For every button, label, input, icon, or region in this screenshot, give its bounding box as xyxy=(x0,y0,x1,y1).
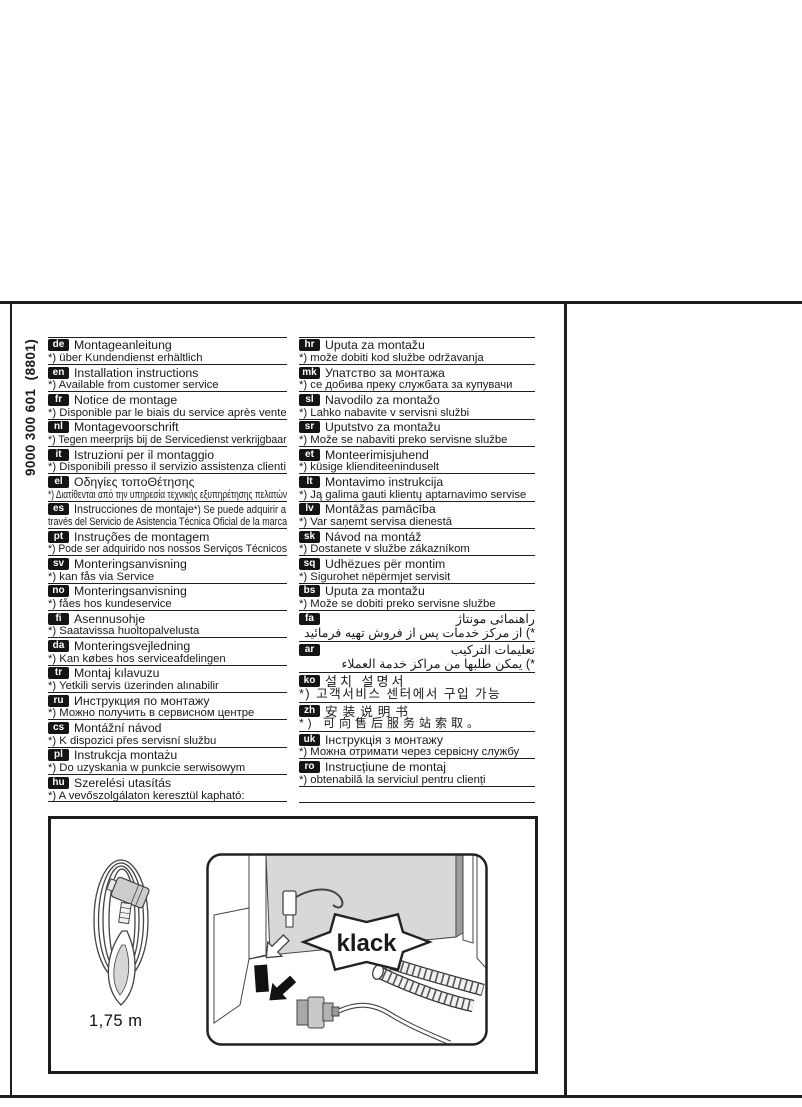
language-title: Monteringsvejledning xyxy=(74,639,190,653)
language-availability-note: *) über Kundendienst erhältlich xyxy=(48,352,287,365)
language-entry-en: enInstallation instructions*) Available … xyxy=(48,365,287,392)
language-availability-note: *) Yetkili servis üzerinden alınabilir xyxy=(48,680,287,693)
language-title: تعليمات التركيب xyxy=(325,642,535,657)
language-code-badge: sv xyxy=(48,558,69,570)
language-column-right: hrUputa za montažu*) može dobiti kod slu… xyxy=(299,337,535,803)
language-availability-note: *) Sigurohet nëpërmjet servisit xyxy=(299,571,535,584)
language-entry-et: etMonteerimisjuhend*) küsige klienditeen… xyxy=(299,447,535,474)
language-entry-lt: ltMontavimo instrukcija*) Ją galima gaut… xyxy=(299,474,535,501)
language-entry-fr: frNotice de montage*) Disponible par le … xyxy=(48,392,287,419)
cable-length-label: 1,75 m xyxy=(89,1012,142,1031)
language-entry-ru: ruИнструкция по монтажу*) Можно получить… xyxy=(48,693,287,720)
language-title: Инструкция по монтажу xyxy=(74,694,209,708)
language-availability-note: *) küsige klienditeeninduselt xyxy=(299,461,535,474)
language-entry-tr: trMontaj kılavuzu*) Yetkili servis üzeri… xyxy=(48,666,287,693)
language-availability-note: *) از مرکز خدمات پس از فروش تهیه فرمائید xyxy=(299,626,535,641)
language-title: Installation instructions xyxy=(74,366,198,380)
language-entry-es: esInstrucciones de montaje*) Se puede ad… xyxy=(48,502,287,529)
language-title: Uputa za montažu xyxy=(325,338,425,352)
language-code-badge: ru xyxy=(48,695,69,707)
language-availability-note: *) obtenabilă la serviciul pentru clienț… xyxy=(299,774,535,787)
language-entry-no: noMonteringsanvisning*) fåes hos kundese… xyxy=(48,584,287,611)
language-entry-uk: ukІнструкція з монтажу*) Можна отримати … xyxy=(299,732,535,759)
language-code-badge: fi xyxy=(48,613,69,625)
socket-opening xyxy=(254,965,269,993)
language-availability-note: *) Do uzyskania w punkcie serwisowym xyxy=(48,762,287,775)
language-availability-note: *) Dostanete v službe zákazníkom xyxy=(299,543,535,556)
language-availability-note: *) Διατίθενται από την υπηρεσία τεχνικής… xyxy=(48,489,224,502)
language-code-badge: tr xyxy=(48,667,69,679)
language-availability-note: *) Var saņemt servisa dienestā xyxy=(299,516,535,529)
language-code-badge: hr xyxy=(299,339,320,351)
language-entry-hr: hrUputa za montažu*) može dobiti kod slu… xyxy=(299,338,535,365)
language-title: Monteringsanvisning xyxy=(74,557,187,571)
part-number-vertical: 9000 300 601 (8801) xyxy=(23,316,41,476)
language-code-badge: it xyxy=(48,449,69,461)
language-title: Інструкція з монтажу xyxy=(325,733,443,747)
language-availability-note: través del Servicio de Asistencia Técnic… xyxy=(48,516,238,529)
language-code-badge: sl xyxy=(299,394,320,406)
language-availability-note: *) Disponible par le biais du service ap… xyxy=(48,407,287,420)
language-entry-ko: ko설치 설명서*) 고객서비스 센터에서 구입 가능 xyxy=(299,673,535,703)
language-title: Montageanleitung xyxy=(74,338,172,352)
language-availability-note: *) Pode ser adquirido nos nossos Serviço… xyxy=(48,543,267,556)
language-title: Notice de montage xyxy=(74,393,177,407)
language-code-badge: ko xyxy=(299,675,320,687)
language-title: Istruzioni per il montaggio xyxy=(74,448,214,462)
language-title: Οδηγίες τοποΘέτησης xyxy=(74,475,195,489)
language-title: Instruções de montagem xyxy=(74,530,209,544)
language-availability-note: *) Можна отримати через сервісну службу xyxy=(299,746,535,759)
language-availability-note: *) Можно получить в сервисном центре xyxy=(48,707,287,720)
language-entry-cs: csMontážní návod*) K dispozici přes serv… xyxy=(48,720,287,747)
language-title: Montážní návod xyxy=(74,721,162,735)
language-entry-fi: fiAsennusohje*) Saatavissa huoltopalvelu… xyxy=(48,611,287,638)
language-availability-note: *) Ją galima gauti klientų aptarnavimo s… xyxy=(299,489,535,502)
page-column-divider xyxy=(564,301,567,1098)
language-entry-sv: svMonteringsanvisning*) kan fås via Serv… xyxy=(48,556,287,583)
language-entry-ar: arتعليمات التركيب*) يمكن طلبها من مراكز … xyxy=(299,642,535,673)
language-entry-it: itIstruzioni per il montaggio*) Disponib… xyxy=(48,447,287,474)
language-title: Udhëzues për montim xyxy=(325,557,445,571)
language-code-badge: cs xyxy=(48,722,69,734)
language-entry-sq: sqUdhëzues për montim*) Sigurohet nëpërm… xyxy=(299,556,535,583)
klack-label: klack xyxy=(336,930,397,957)
language-code-badge: ro xyxy=(299,761,320,773)
language-title: Monteerimisjuhend xyxy=(325,448,429,462)
language-availability-note: *) يمكن طلبها من مراكز خدمة العملاء xyxy=(299,657,535,672)
language-title: Asennusohje xyxy=(74,612,145,626)
language-code-badge: uk xyxy=(299,734,320,746)
language-code-badge: lv xyxy=(299,503,320,515)
language-code-badge: pt xyxy=(48,531,69,543)
language-entry-mk: mkУпатство за монтажа*) се добива преку … xyxy=(299,365,535,392)
language-entry-hu: huSzerelési utasítás*) A vevőszolgálaton… xyxy=(48,775,287,802)
language-title: Montavimo instrukcija xyxy=(325,475,443,489)
language-entry-ro: roInstrucțiune de montaj*) obtenabilă la… xyxy=(299,759,535,786)
language-availability-note: *) Available from customer service xyxy=(48,379,287,392)
language-code-badge: mk xyxy=(299,367,320,379)
language-availability-note: *) 고객서비스 센터에서 구입 가능 xyxy=(299,687,535,701)
language-title: Instrucciones de montaje xyxy=(74,502,194,516)
language-availability-note: *) Tegen meerprijs bij de Servicedienst … xyxy=(48,434,272,447)
power-plug xyxy=(297,997,339,1028)
language-entry-pl: plInstrukcja montażu*) Do uzyskania w pu… xyxy=(48,748,287,775)
language-entry-lv: lvMontāžas pamācība*) Var saņemt servisa… xyxy=(299,502,535,529)
language-entry-fa: faراهنمائی مونتاژ*) از مرکز خدمات پس از … xyxy=(299,611,535,642)
page-top-border xyxy=(0,301,802,304)
language-title: Szerelési utasítás xyxy=(74,776,171,790)
illustration-box: 1,75 m xyxy=(48,816,538,1074)
language-availability-note: *) kan fås via Service xyxy=(48,571,287,584)
language-code-badge: de xyxy=(48,339,69,351)
power-cord xyxy=(339,1005,450,1043)
language-column-left: deMontageanleitung*) über Kundendienst e… xyxy=(48,337,287,803)
language-code-badge: zh xyxy=(299,705,320,717)
language-entry-el: elΟδηγίες τοποΘέτησης*) Διατίθενται από … xyxy=(48,474,287,501)
manual-page: 9000 300 601 (8801) deMontageanleitung*)… xyxy=(0,0,802,1107)
language-code-badge: fr xyxy=(48,394,69,406)
language-code-badge: es xyxy=(48,503,69,515)
language-entry-nl: nlMontagevoorschrift*) Tegen meerprijs b… xyxy=(48,420,287,447)
column-end-rule xyxy=(299,787,535,803)
language-title: Montāžas pamācība xyxy=(325,502,436,516)
language-code-badge: da xyxy=(48,640,69,652)
language-code-badge: sq xyxy=(299,558,320,570)
page-bottom-border xyxy=(0,1095,802,1098)
appliance-connection-illustration: klack xyxy=(206,853,488,1046)
language-title: Montaj kılavuzu xyxy=(74,666,159,680)
language-availability-note: *) može dobiti kod službe održavanja xyxy=(299,352,535,365)
language-code-badge: sr xyxy=(299,421,320,433)
language-title: Instrukcja montażu xyxy=(74,748,177,762)
language-entry-de: deMontageanleitung*) über Kundendienst e… xyxy=(48,338,287,365)
appliance-side-wall xyxy=(214,908,249,1023)
language-code-badge: et xyxy=(299,449,320,461)
language-title: Uputa za montažu xyxy=(325,584,425,598)
language-entry-sr: srUputstvo za montažu*) Može se nabaviti… xyxy=(299,420,535,447)
language-code-badge: lt xyxy=(299,476,320,488)
language-code-badge: ar xyxy=(299,644,320,656)
language-entry-sk: skNávod na montáž*) Dostanete v službe z… xyxy=(299,529,535,556)
language-availability-note: *) Lahko nabavite v servisni službi xyxy=(299,407,535,420)
page-left-border xyxy=(10,301,12,1098)
language-title: راهنمائی مونتاژ xyxy=(325,611,535,626)
language-code-badge: en xyxy=(48,367,69,379)
language-code-badge: sk xyxy=(299,531,320,543)
cable-tie-band xyxy=(119,902,132,923)
language-code-badge: nl xyxy=(48,421,69,433)
language-availability-note: *) Može se dobiti preko servisne službe xyxy=(299,598,535,611)
language-availability-note: *) A vevőszolgálaton keresztül kapható: xyxy=(48,790,287,803)
language-availability-note: *) Može se nabaviti preko servisne služb… xyxy=(299,434,535,447)
language-entry-pt: ptInstruções de montagem*) Pode ser adqu… xyxy=(48,529,287,556)
language-availability-note: *) K dispozici přes servisní službu xyxy=(48,735,287,748)
language-entry-da: daMonteringsvejledning*) Kan købes hos s… xyxy=(48,638,287,665)
language-title-suffix: *) Se puede adquirir a xyxy=(194,504,287,516)
language-title: Uputstvo za montažu xyxy=(325,420,441,434)
language-title: Montagevoorschrift xyxy=(74,420,179,434)
language-code-badge: el xyxy=(48,476,69,488)
language-code-badge: pl xyxy=(48,749,69,761)
language-entry-bs: bsUputa za montažu*) Može se dobiti prek… xyxy=(299,584,535,611)
language-entry-zh: zh安装说明书*) 可向售后服务站索取。 xyxy=(299,703,535,732)
language-availability-note: *) Disponibili presso il servizio assist… xyxy=(48,461,287,474)
language-code-badge: hu xyxy=(48,777,69,789)
language-title: Monteringsanvisning xyxy=(74,584,187,598)
language-title: Návod na montáž xyxy=(325,530,421,544)
language-title: Instrucțiune de montaj xyxy=(325,760,446,774)
language-availability-note: *) Saatavissa huoltopalvelusta xyxy=(48,625,287,638)
language-code-badge: fa xyxy=(299,613,320,625)
language-title: Navodilo za montažo xyxy=(325,393,440,407)
language-code-badge: bs xyxy=(299,585,320,597)
language-code-badge: no xyxy=(48,585,69,597)
language-availability-note: *) fåes hos kundeservice xyxy=(48,598,287,611)
language-availability-note: *) Kan købes hos serviceafdelingen xyxy=(48,653,287,666)
language-title: Упатство за монтажа xyxy=(325,366,445,380)
language-availability-note: *) се добива преку службата за купувачи xyxy=(299,379,535,392)
power-cable-coil-illustration xyxy=(81,847,171,1017)
language-entry-sl: slNavodilo za montažo*) Lahko nabavite v… xyxy=(299,392,535,419)
